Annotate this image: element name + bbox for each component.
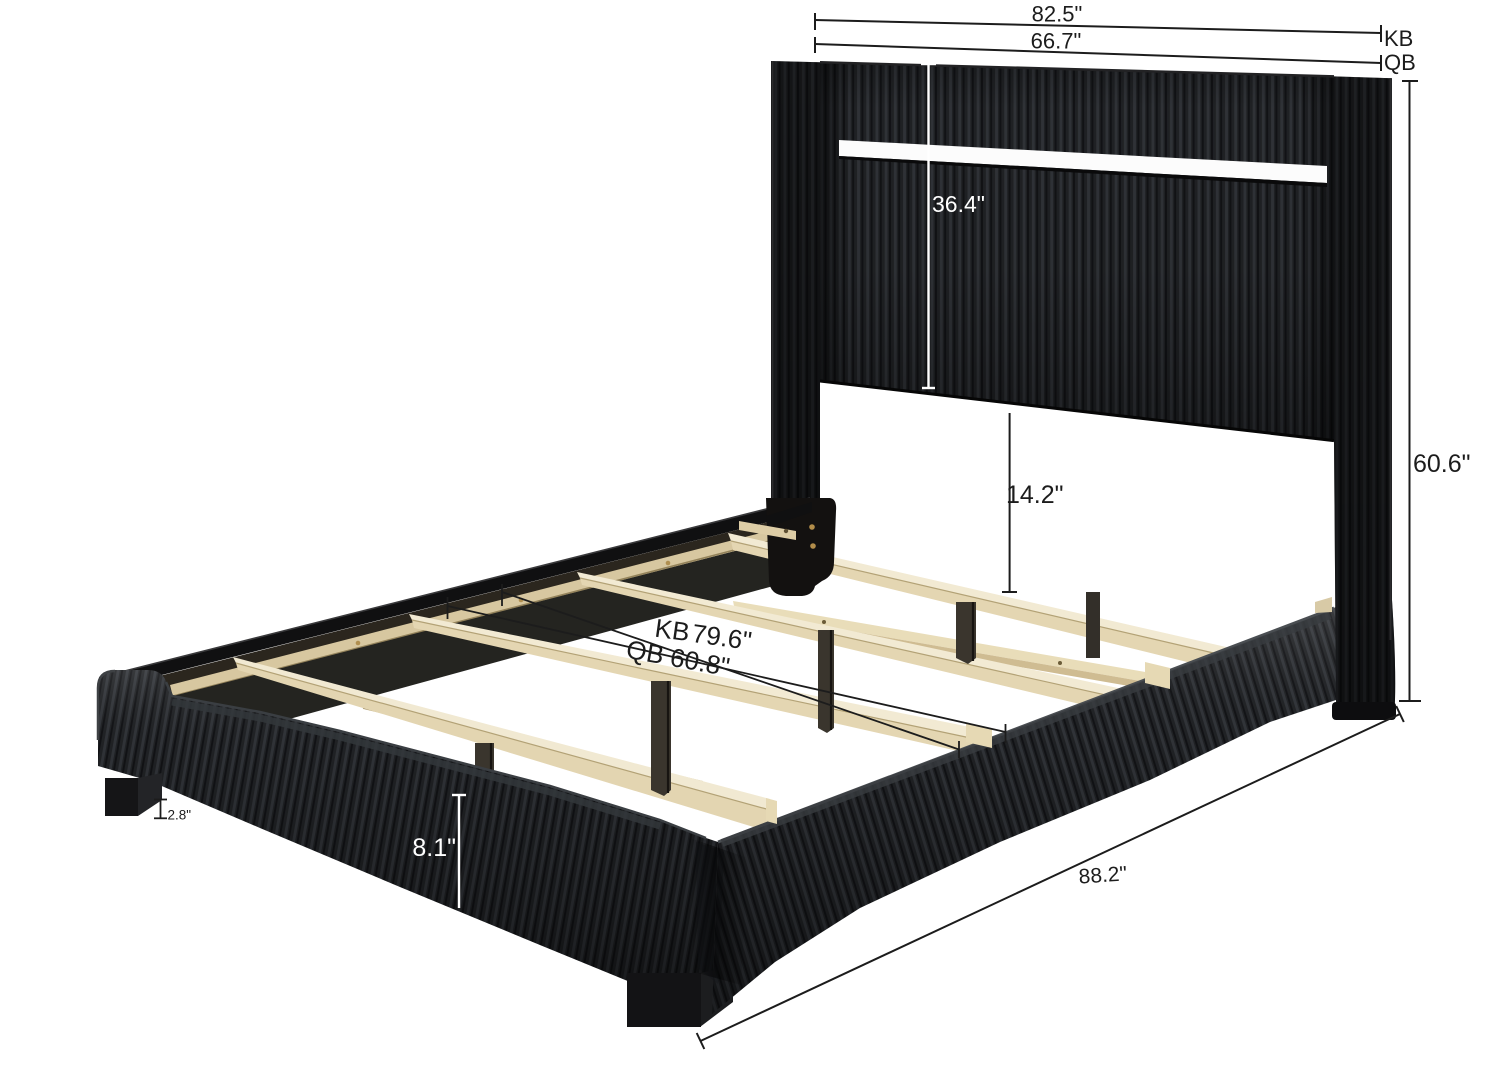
svg-text:88.2": 88.2"	[1078, 862, 1128, 888]
svg-text:QB: QB	[1384, 50, 1416, 75]
svg-text:82.5": 82.5"	[1032, 2, 1083, 27]
svg-text:KB: KB	[1384, 26, 1413, 51]
svg-text:60.6": 60.6"	[1413, 450, 1471, 478]
svg-text:QB: QB	[624, 634, 666, 670]
svg-text:36.4": 36.4"	[932, 191, 985, 217]
svg-text:2.8": 2.8"	[168, 808, 192, 823]
svg-text:14.2": 14.2"	[1006, 481, 1064, 509]
svg-text:66.7": 66.7"	[1031, 29, 1082, 54]
svg-text:8.1": 8.1"	[412, 834, 456, 862]
